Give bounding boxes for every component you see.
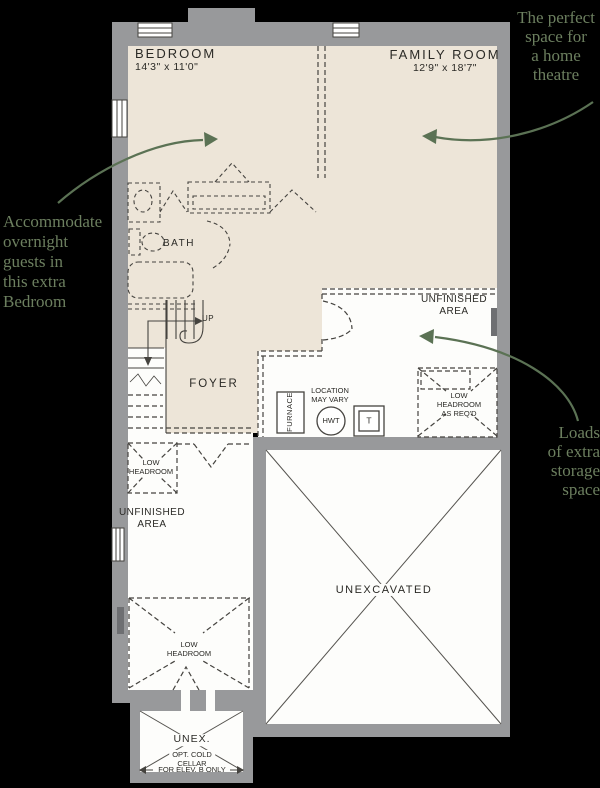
cold-cellar-line1: OPT. COLD — [172, 750, 212, 759]
unfinished-right-line1: UNFINISHED — [421, 294, 487, 306]
low-headroom-left-label: LOW HEADROOM — [129, 458, 173, 476]
location-note-line1: LOCATION — [311, 386, 349, 395]
theatre-line4: theatre — [508, 65, 600, 84]
foyer-label: FOYER — [189, 378, 239, 391]
storage-line2: of extra — [518, 442, 600, 461]
unexcavated-label: UNEXCAVATED — [333, 584, 436, 596]
unex-label: UNEX. — [170, 734, 213, 746]
location-note-line2: MAY VARY — [311, 395, 349, 404]
tank-label: T — [366, 416, 371, 425]
family-room-dims: 12'9" x 18'7" — [413, 63, 477, 75]
location-note: LOCATION MAY VARY — [311, 386, 349, 404]
bath-label: BATH — [163, 238, 195, 249]
unfinished-right-label: UNFINISHED AREA — [421, 294, 487, 318]
door-gap — [206, 690, 215, 711]
lh-right-line3: AS REQ'D — [437, 409, 481, 418]
lh-left-line2: HEADROOM — [129, 467, 173, 476]
storage-line1: Loads — [518, 423, 600, 442]
storage-line3: storage — [518, 461, 600, 480]
guests-line4: this extra — [3, 272, 123, 292]
theatre-line1: The perfect — [508, 8, 600, 27]
floor-plan-page: BEDROOM 14'3" x 11'0" FAMILY ROOM 12'9" … — [0, 0, 600, 788]
floor-plan-drawing — [0, 0, 600, 788]
lh-right-line2: HEADROOM — [437, 400, 481, 409]
unfinished-right-line2: AREA — [421, 306, 487, 318]
guests-annotation: Accommodate overnight guests in this ext… — [3, 212, 123, 312]
theatre-line2: space for — [508, 27, 600, 46]
guests-line3: guests in — [3, 252, 123, 272]
theatre-line3: a home — [508, 46, 600, 65]
unfinished-left-label: UNFINISHED AREA — [119, 507, 185, 531]
lh-left-line1: LOW — [129, 458, 173, 467]
guests-line2: overnight — [3, 232, 123, 252]
hwt-label: HWT — [322, 417, 339, 425]
low-headroom-right-label: LOW HEADROOM AS REQ'D — [437, 391, 481, 418]
storage-annotation: Loads of extra storage space — [518, 423, 600, 499]
up-label: UP — [202, 315, 214, 324]
bedroom-dims: 14'3" x 11'0" — [135, 62, 198, 74]
theatre-annotation: The perfect space for a home theatre — [508, 8, 600, 84]
lh-bottom-line1: LOW — [167, 640, 211, 649]
door-gap — [181, 690, 190, 711]
unfinished-left-line2: AREA — [119, 519, 185, 531]
guests-line1: Accommodate — [3, 212, 123, 232]
unfinished-left-line1: UNFINISHED — [119, 507, 185, 519]
lh-right-line1: LOW — [437, 391, 481, 400]
family-room-label: FAMILY ROOM — [389, 48, 500, 62]
furnace-label: FURNACE — [286, 392, 294, 432]
lh-bottom-line2: HEADROOM — [167, 649, 211, 658]
bedroom-label: BEDROOM — [135, 47, 216, 61]
storage-line4: space — [518, 480, 600, 499]
guests-line5: Bedroom — [3, 292, 123, 312]
low-headroom-bottom-label: LOW HEADROOM — [167, 640, 211, 658]
elev-note-label: FOR ELEV. B ONLY — [158, 766, 226, 774]
